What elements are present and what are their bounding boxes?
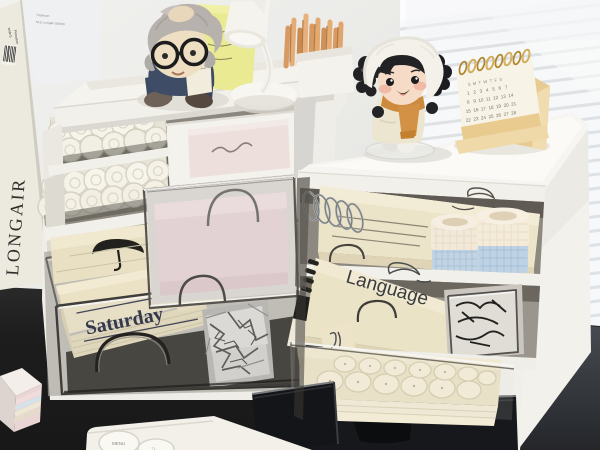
svg-text:↑↓: ↑↓ (151, 446, 156, 450)
svg-text:MENU: MENU (112, 441, 125, 446)
